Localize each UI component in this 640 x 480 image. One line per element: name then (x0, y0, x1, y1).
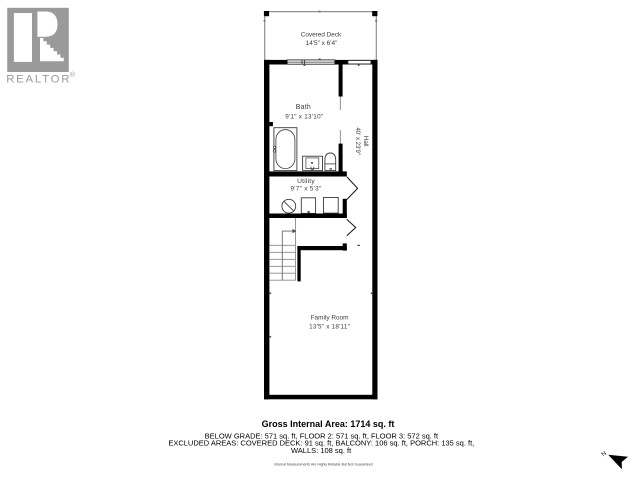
svg-text:13'5" x 18'11": 13'5" x 18'11" (309, 323, 350, 330)
svg-text:Family Room: Family Room (311, 315, 349, 322)
svg-text:Utility: Utility (297, 178, 315, 185)
svg-text:REALTOR: REALTOR (6, 74, 71, 86)
svg-text:9'7" x 5'3": 9'7" x 5'3" (290, 186, 321, 193)
svg-text:Internal Measurements Are High: Internal Measurements Are Highly Reliabl… (274, 462, 372, 466)
svg-text:40' x 23'9": 40' x 23'9" (354, 127, 360, 154)
svg-text:Hall: Hall (362, 136, 369, 147)
svg-text:WALLS: 108 sq. ft: WALLS: 108 sq. ft (291, 446, 352, 455)
svg-text:9'1" x 13'10": 9'1" x 13'10" (285, 113, 323, 120)
svg-text:Gross Internal Area: 1714 sq.: Gross Internal Area: 1714 sq. ft (262, 419, 395, 429)
svg-text:14'5" x 6'4": 14'5" x 6'4" (306, 40, 338, 47)
svg-text:Bath: Bath (296, 104, 311, 111)
svg-text:N: N (600, 450, 608, 458)
svg-text:®: ® (70, 71, 76, 79)
svg-text:Covered Deck: Covered Deck (301, 31, 342, 38)
